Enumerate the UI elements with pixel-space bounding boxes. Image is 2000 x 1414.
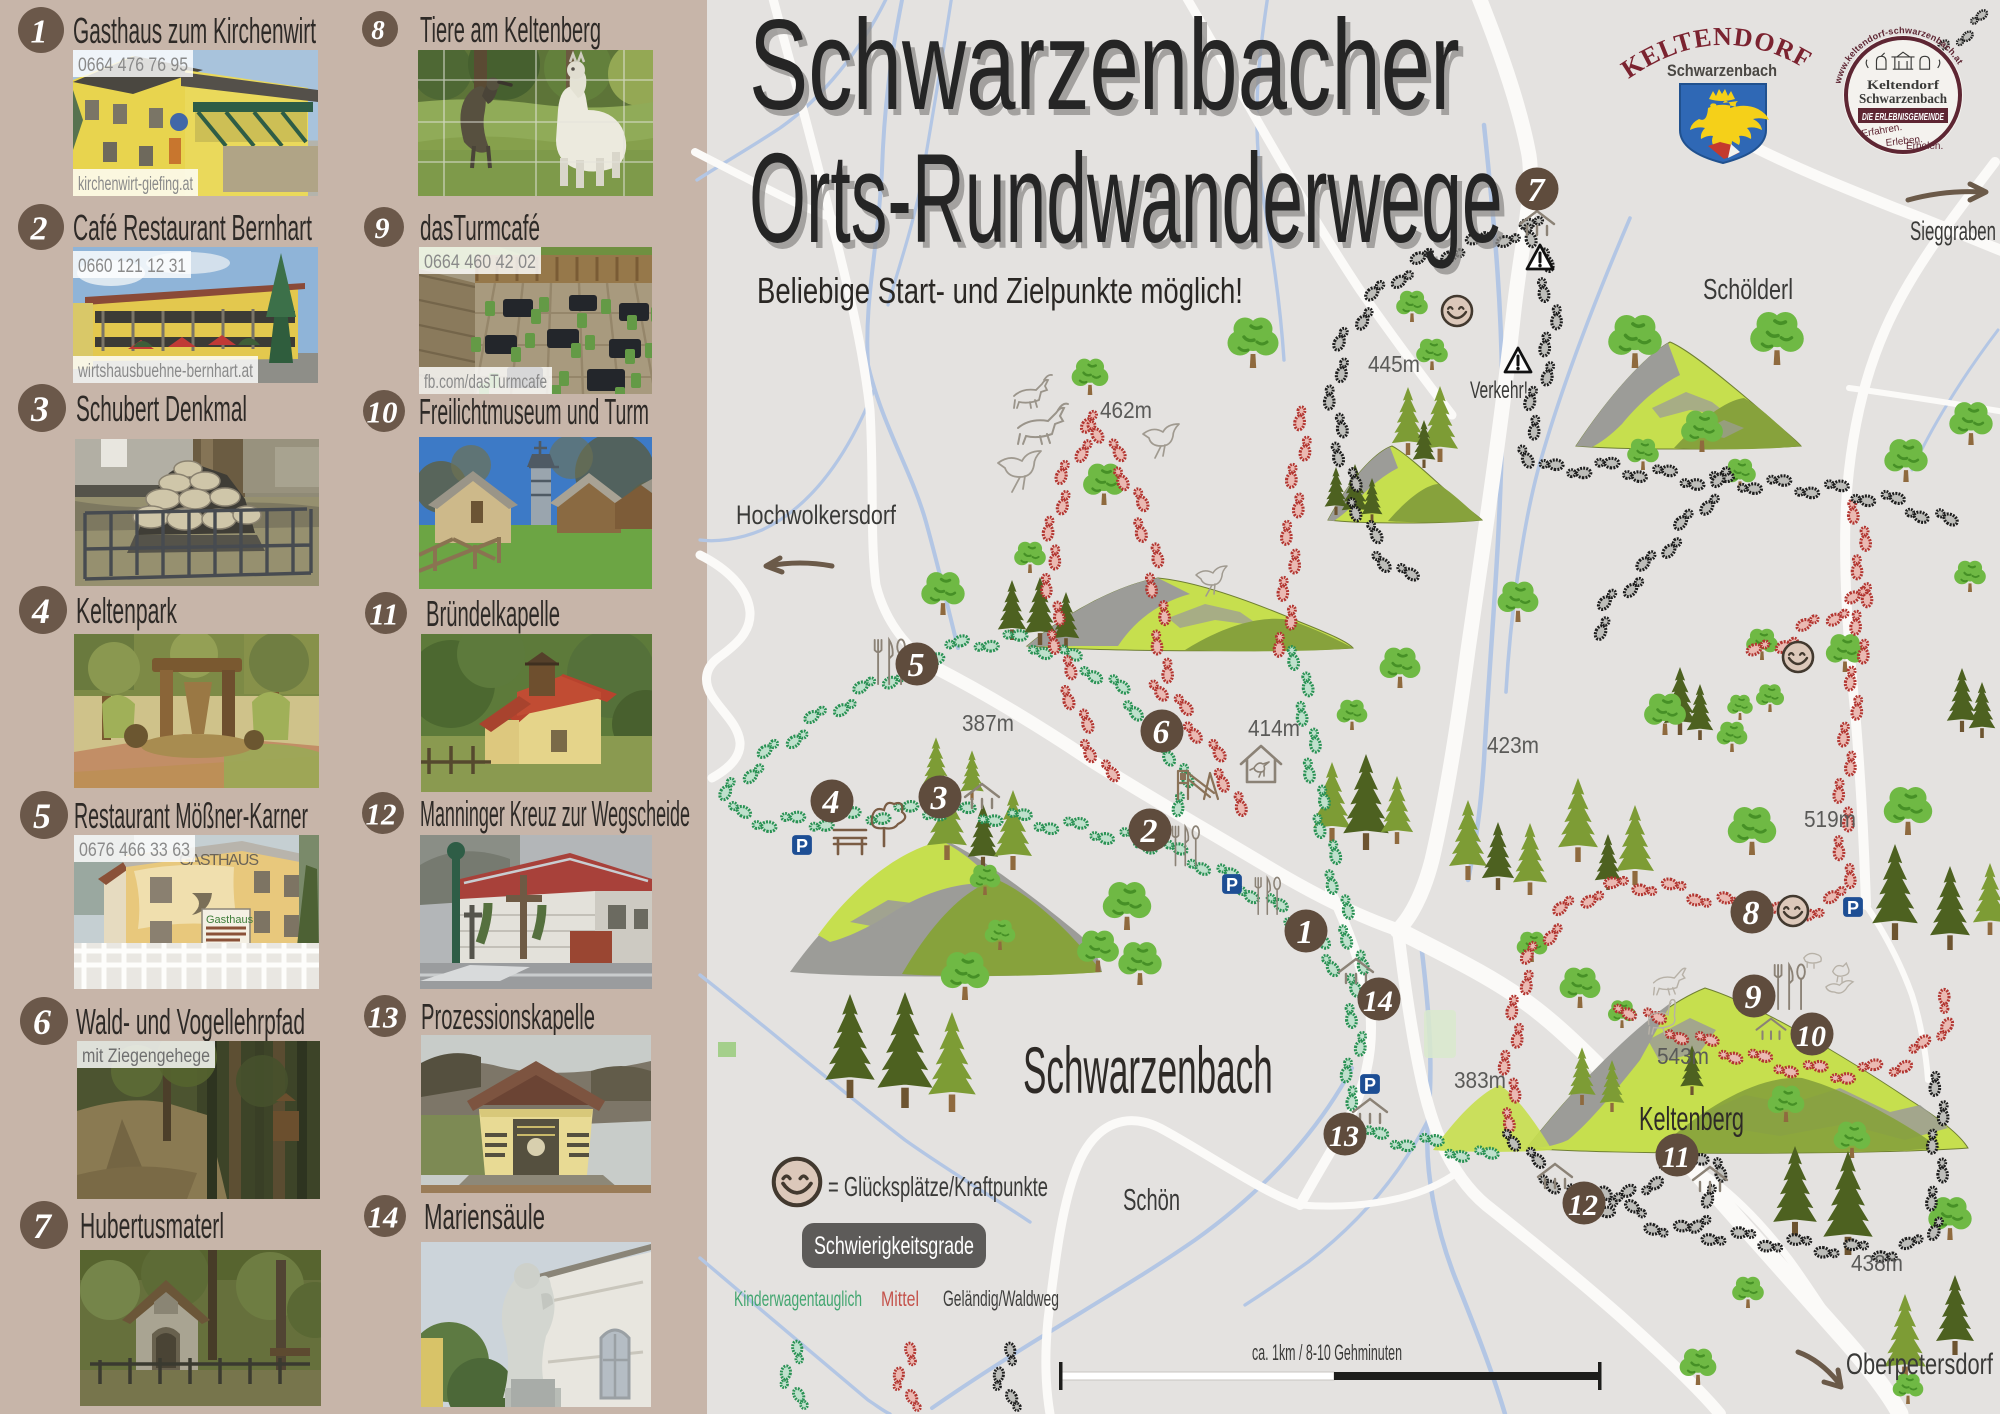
svg-text:2: 2 (1140, 813, 1158, 850)
svg-text:Keltendorf: Keltendorf (1867, 77, 1940, 92)
svg-text:438m: 438m (1851, 1250, 1903, 1276)
svg-text:fb.com/dasTurmcafe: fb.com/dasTurmcafe (424, 372, 547, 393)
svg-text:0676 466 33 63: 0676 466 33 63 (79, 840, 190, 861)
svg-text:Mariensäule: Mariensäule (424, 1196, 545, 1237)
svg-text:Tiere am Keltenberg: Tiere am Keltenberg (420, 9, 601, 50)
svg-text:5: 5 (908, 647, 925, 684)
svg-text:6: 6 (33, 1002, 51, 1042)
svg-text:dasTurmcafé: dasTurmcafé (420, 207, 540, 248)
svg-text:Schubert Denkmal: Schubert Denkmal (76, 388, 247, 429)
svg-text:3: 3 (930, 780, 948, 817)
svg-text:Schön: Schön (1123, 1182, 1180, 1217)
svg-text:Erholen.: Erholen. (1906, 141, 1943, 152)
svg-text:Wald- und Vogellehrpfad: Wald- und Vogellehrpfad (76, 1001, 305, 1042)
svg-text:Verkehr!: Verkehr! (1470, 377, 1528, 404)
svg-text:kirchenwirt-giefing.at: kirchenwirt-giefing.at (78, 174, 193, 195)
svg-text:Café Restaurant Bernhart: Café Restaurant Bernhart (73, 207, 312, 248)
svg-text:4: 4 (31, 591, 50, 631)
svg-text:Manninger Kreuz zur Wegscheide: Manninger Kreuz zur Wegscheide (420, 793, 690, 834)
svg-text:Keltenpark: Keltenpark (76, 590, 178, 631)
svg-text:Hochwolkersdorf: Hochwolkersdorf (736, 500, 896, 530)
svg-text:Oberpetersdorf: Oberpetersdorf (1846, 1348, 1993, 1381)
svg-text:12: 12 (366, 797, 397, 832)
svg-text:12: 12 (1568, 1189, 1598, 1222)
svg-text:2: 2 (30, 211, 48, 248)
svg-text:543m: 543m (1657, 1043, 1709, 1069)
svg-text:11: 11 (369, 597, 398, 632)
svg-text:387m: 387m (962, 710, 1014, 736)
svg-text:Keltenberg: Keltenberg (1639, 1100, 1744, 1137)
svg-text:0664 460 42 02: 0664 460 42 02 (424, 252, 536, 273)
svg-text:Schwarzenbach: Schwarzenbach (1667, 61, 1777, 80)
svg-text:14: 14 (368, 1200, 399, 1235)
svg-text:Mittel: Mittel (881, 1288, 919, 1311)
svg-text:Schwierigkeitsgrade: Schwierigkeitsgrade (814, 1232, 974, 1260)
svg-text:Beliebige Start- und Zielpunkt: Beliebige Start- und Zielpunkte möglich! (757, 270, 1243, 311)
svg-text:Gasthaus zum Kirchenwirt: Gasthaus zum Kirchenwirt (73, 10, 316, 51)
svg-text:8: 8 (371, 15, 385, 45)
svg-text:Schwarzenbacher: Schwarzenbacher (749, 0, 1460, 137)
svg-text:14: 14 (1363, 985, 1393, 1018)
svg-text:423m: 423m (1487, 732, 1539, 758)
svg-text:7: 7 (1528, 172, 1547, 209)
svg-text:Schwarzenbach: Schwarzenbach (1023, 1034, 1273, 1108)
svg-text:519m: 519m (1804, 806, 1856, 832)
svg-text:Restaurant Mößner-Karner: Restaurant Mößner-Karner (74, 795, 308, 836)
svg-text:11: 11 (1662, 1141, 1690, 1174)
svg-text:1: 1 (31, 14, 48, 51)
svg-text:0660 121 12 31: 0660 121 12 31 (78, 256, 186, 277)
svg-text:10: 10 (367, 395, 398, 430)
svg-text:445m: 445m (1368, 351, 1420, 377)
svg-text:Schwarzenbach: Schwarzenbach (1859, 92, 1947, 107)
svg-text:13: 13 (368, 1000, 399, 1035)
svg-text:Bründelkapelle: Bründelkapelle (426, 593, 560, 634)
svg-text:Hubertusmaterl: Hubertusmaterl (80, 1205, 224, 1246)
svg-text:13: 13 (1329, 1120, 1359, 1153)
svg-text:Sieggraben: Sieggraben (1910, 216, 1996, 246)
svg-text:414m: 414m (1248, 715, 1300, 741)
svg-text:Prozessionskapelle: Prozessionskapelle (421, 996, 595, 1037)
svg-text:ca. 1km / 8-10 Gehminuten: ca. 1km / 8-10 Gehminuten (1252, 1340, 1402, 1365)
svg-text:Kinderwagentauglich: Kinderwagentauglich (734, 1288, 862, 1311)
svg-text:1: 1 (1297, 914, 1314, 951)
svg-text:4: 4 (822, 784, 840, 821)
svg-text:Gasthaus: Gasthaus (206, 914, 254, 926)
svg-text:6: 6 (1153, 714, 1170, 751)
svg-text:Orts-Rundwanderwege: Orts-Rundwanderwege (749, 128, 1503, 270)
svg-text:8: 8 (1743, 895, 1760, 932)
svg-text:0664 476 76 95: 0664 476 76 95 (78, 55, 188, 76)
svg-text:7: 7 (33, 1206, 53, 1246)
svg-text:9: 9 (1745, 979, 1762, 1016)
svg-text:Freilichtmuseum und Turm: Freilichtmuseum und Turm (419, 391, 649, 432)
svg-text:= Glücksplätze/Kraftpunkte: = Glücksplätze/Kraftpunkte (828, 1171, 1048, 1202)
svg-text:Schölderl: Schölderl (1703, 274, 1793, 306)
svg-text:DIE ERLEBNISGEMEINDE: DIE ERLEBNISGEMEINDE (1862, 111, 1945, 123)
svg-text:9: 9 (375, 212, 390, 245)
svg-text:wirtshausbuehne-bernhart.at: wirtshausbuehne-bernhart.at (77, 361, 253, 382)
svg-text:10: 10 (1796, 1020, 1826, 1053)
svg-text:mit Ziegengehege: mit Ziegengehege (82, 1046, 210, 1067)
svg-text:Geländig/Waldweg: Geländig/Waldweg (943, 1286, 1059, 1311)
svg-text:383m: 383m (1454, 1067, 1506, 1093)
svg-text:5: 5 (33, 796, 51, 836)
svg-text:462m: 462m (1100, 397, 1152, 423)
svg-text:3: 3 (30, 389, 49, 429)
